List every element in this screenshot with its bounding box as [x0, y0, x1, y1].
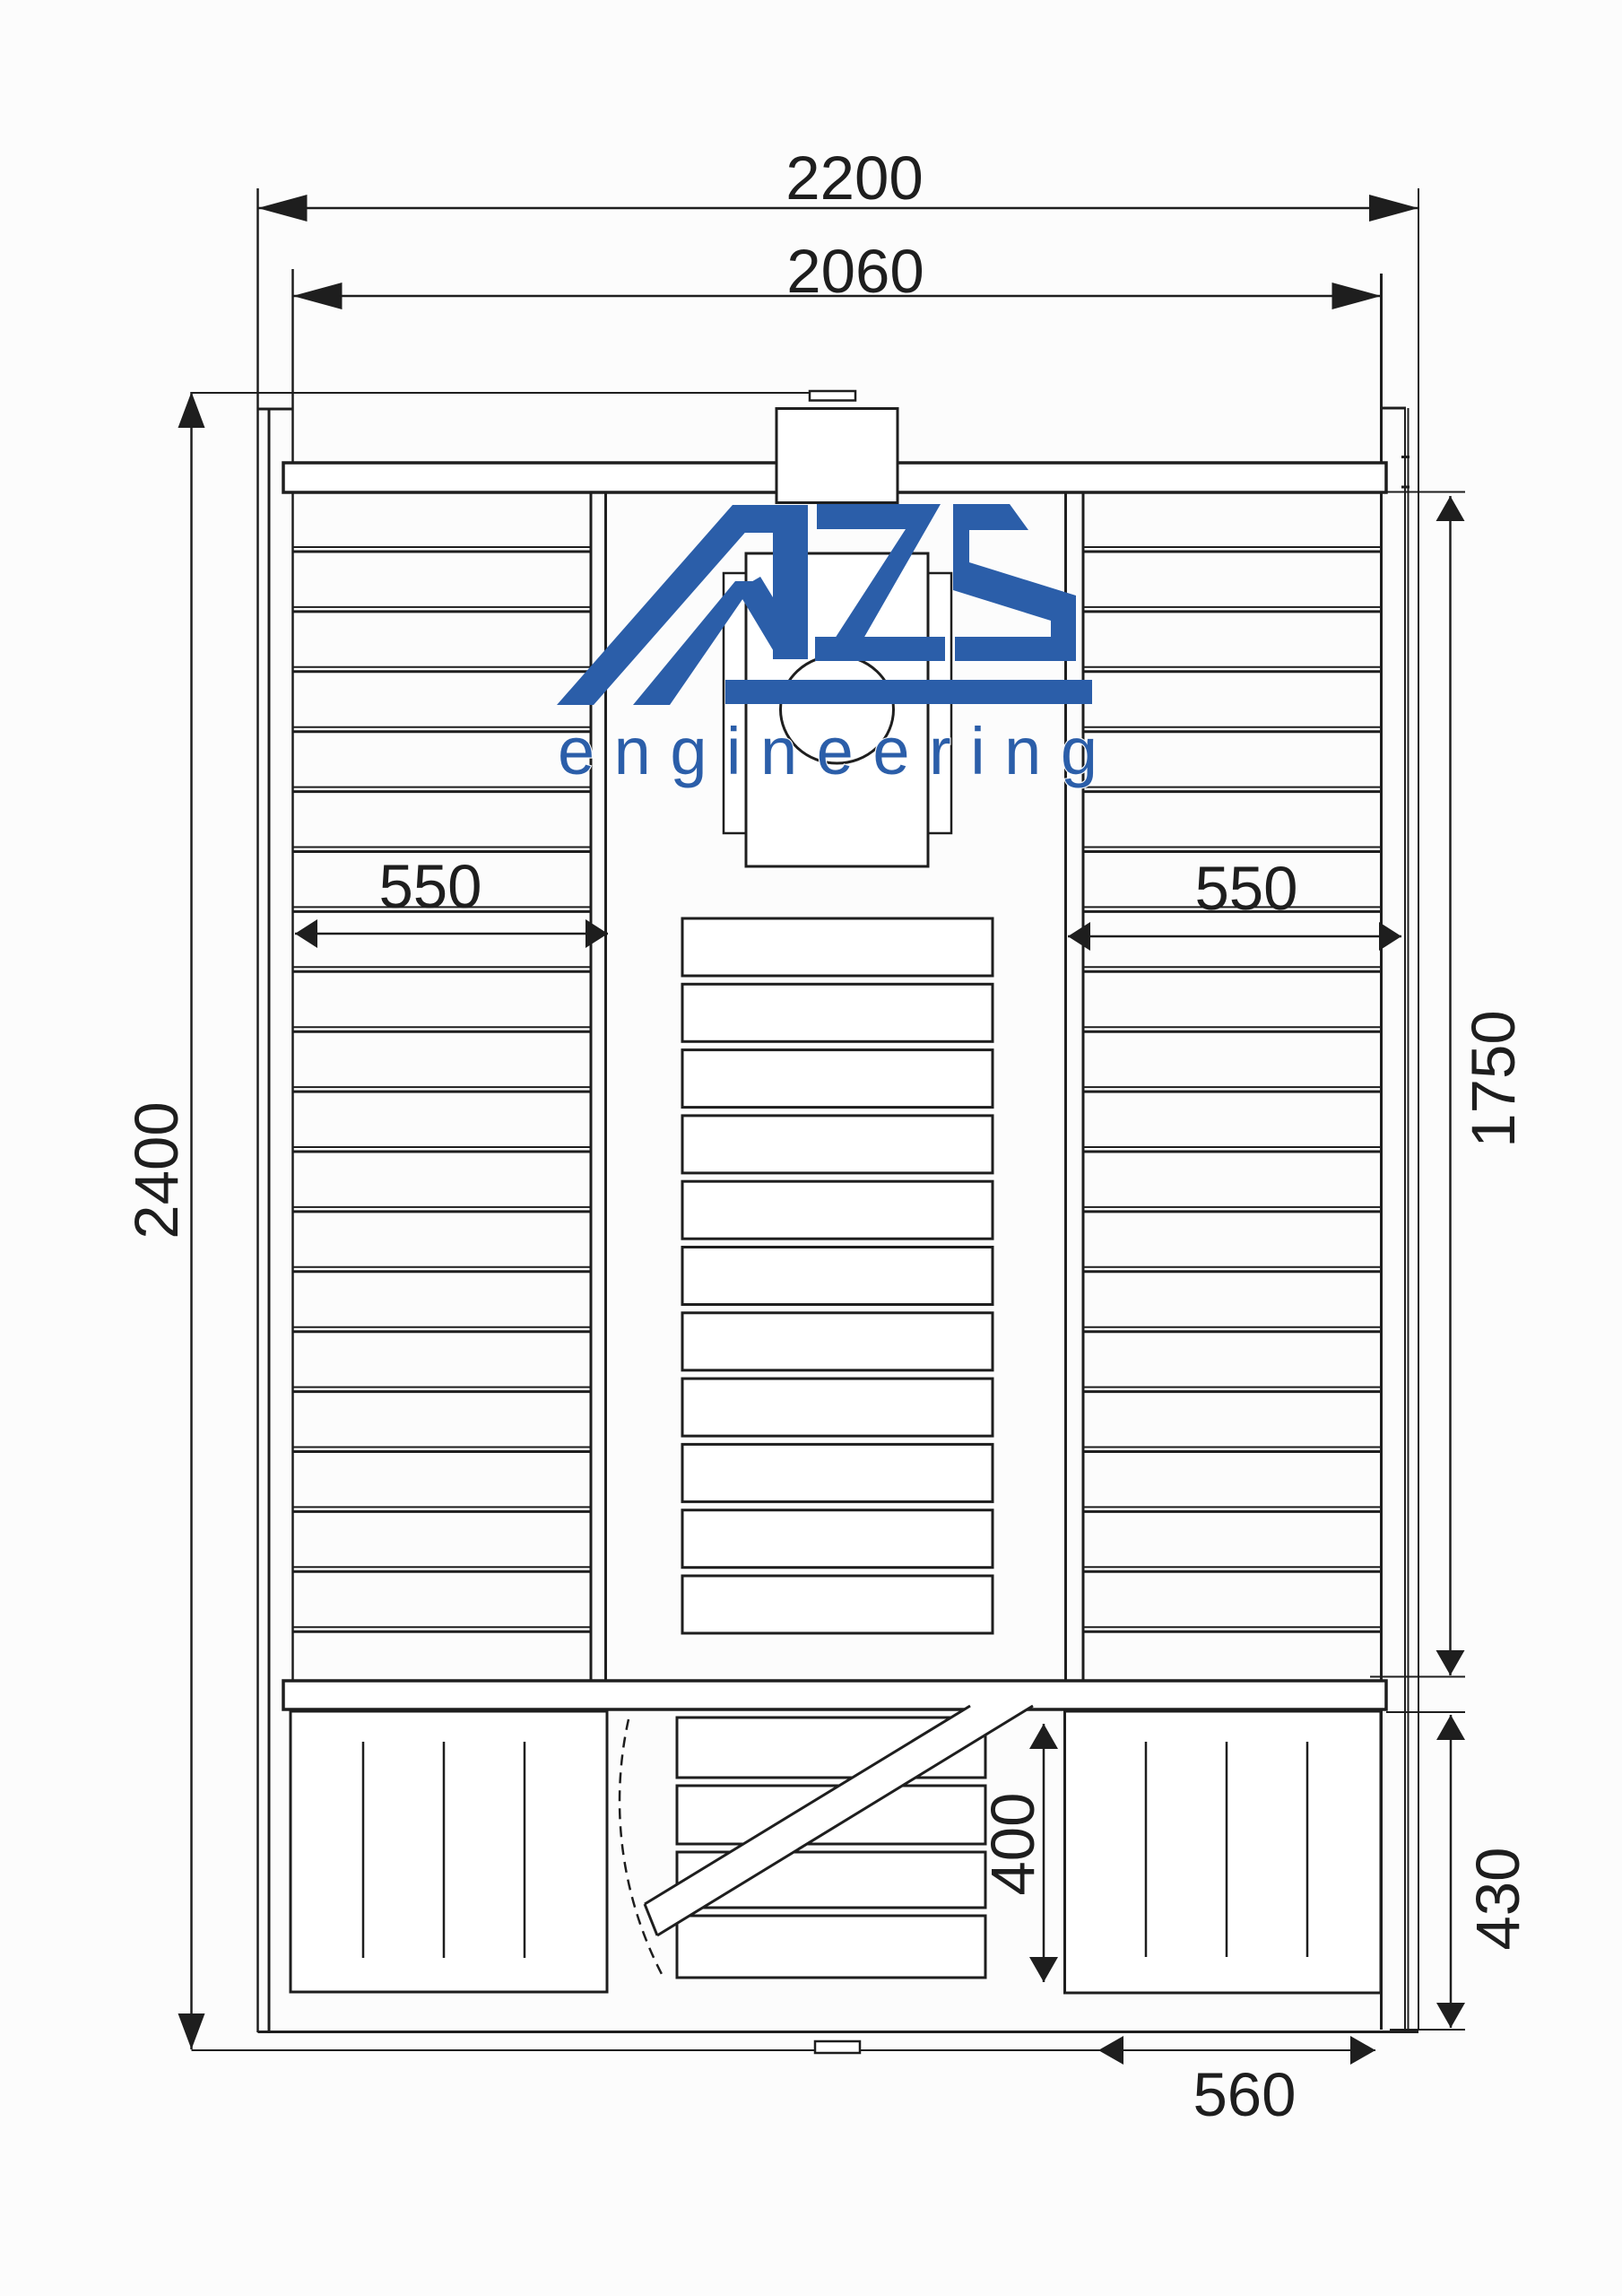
- svg-text:550: 550: [1194, 854, 1297, 923]
- svg-text:1750: 1750: [1459, 1010, 1528, 1148]
- svg-text:400: 400: [978, 1792, 1047, 1895]
- svg-text:560: 560: [1193, 2060, 1296, 2129]
- svg-text:engineering: engineering: [558, 714, 1097, 788]
- svg-text:2400: 2400: [122, 1101, 191, 1239]
- svg-text:550: 550: [378, 852, 481, 921]
- svg-text:2060: 2060: [786, 237, 924, 306]
- svg-text:430: 430: [1463, 1847, 1532, 1950]
- svg-text:2200: 2200: [785, 143, 924, 213]
